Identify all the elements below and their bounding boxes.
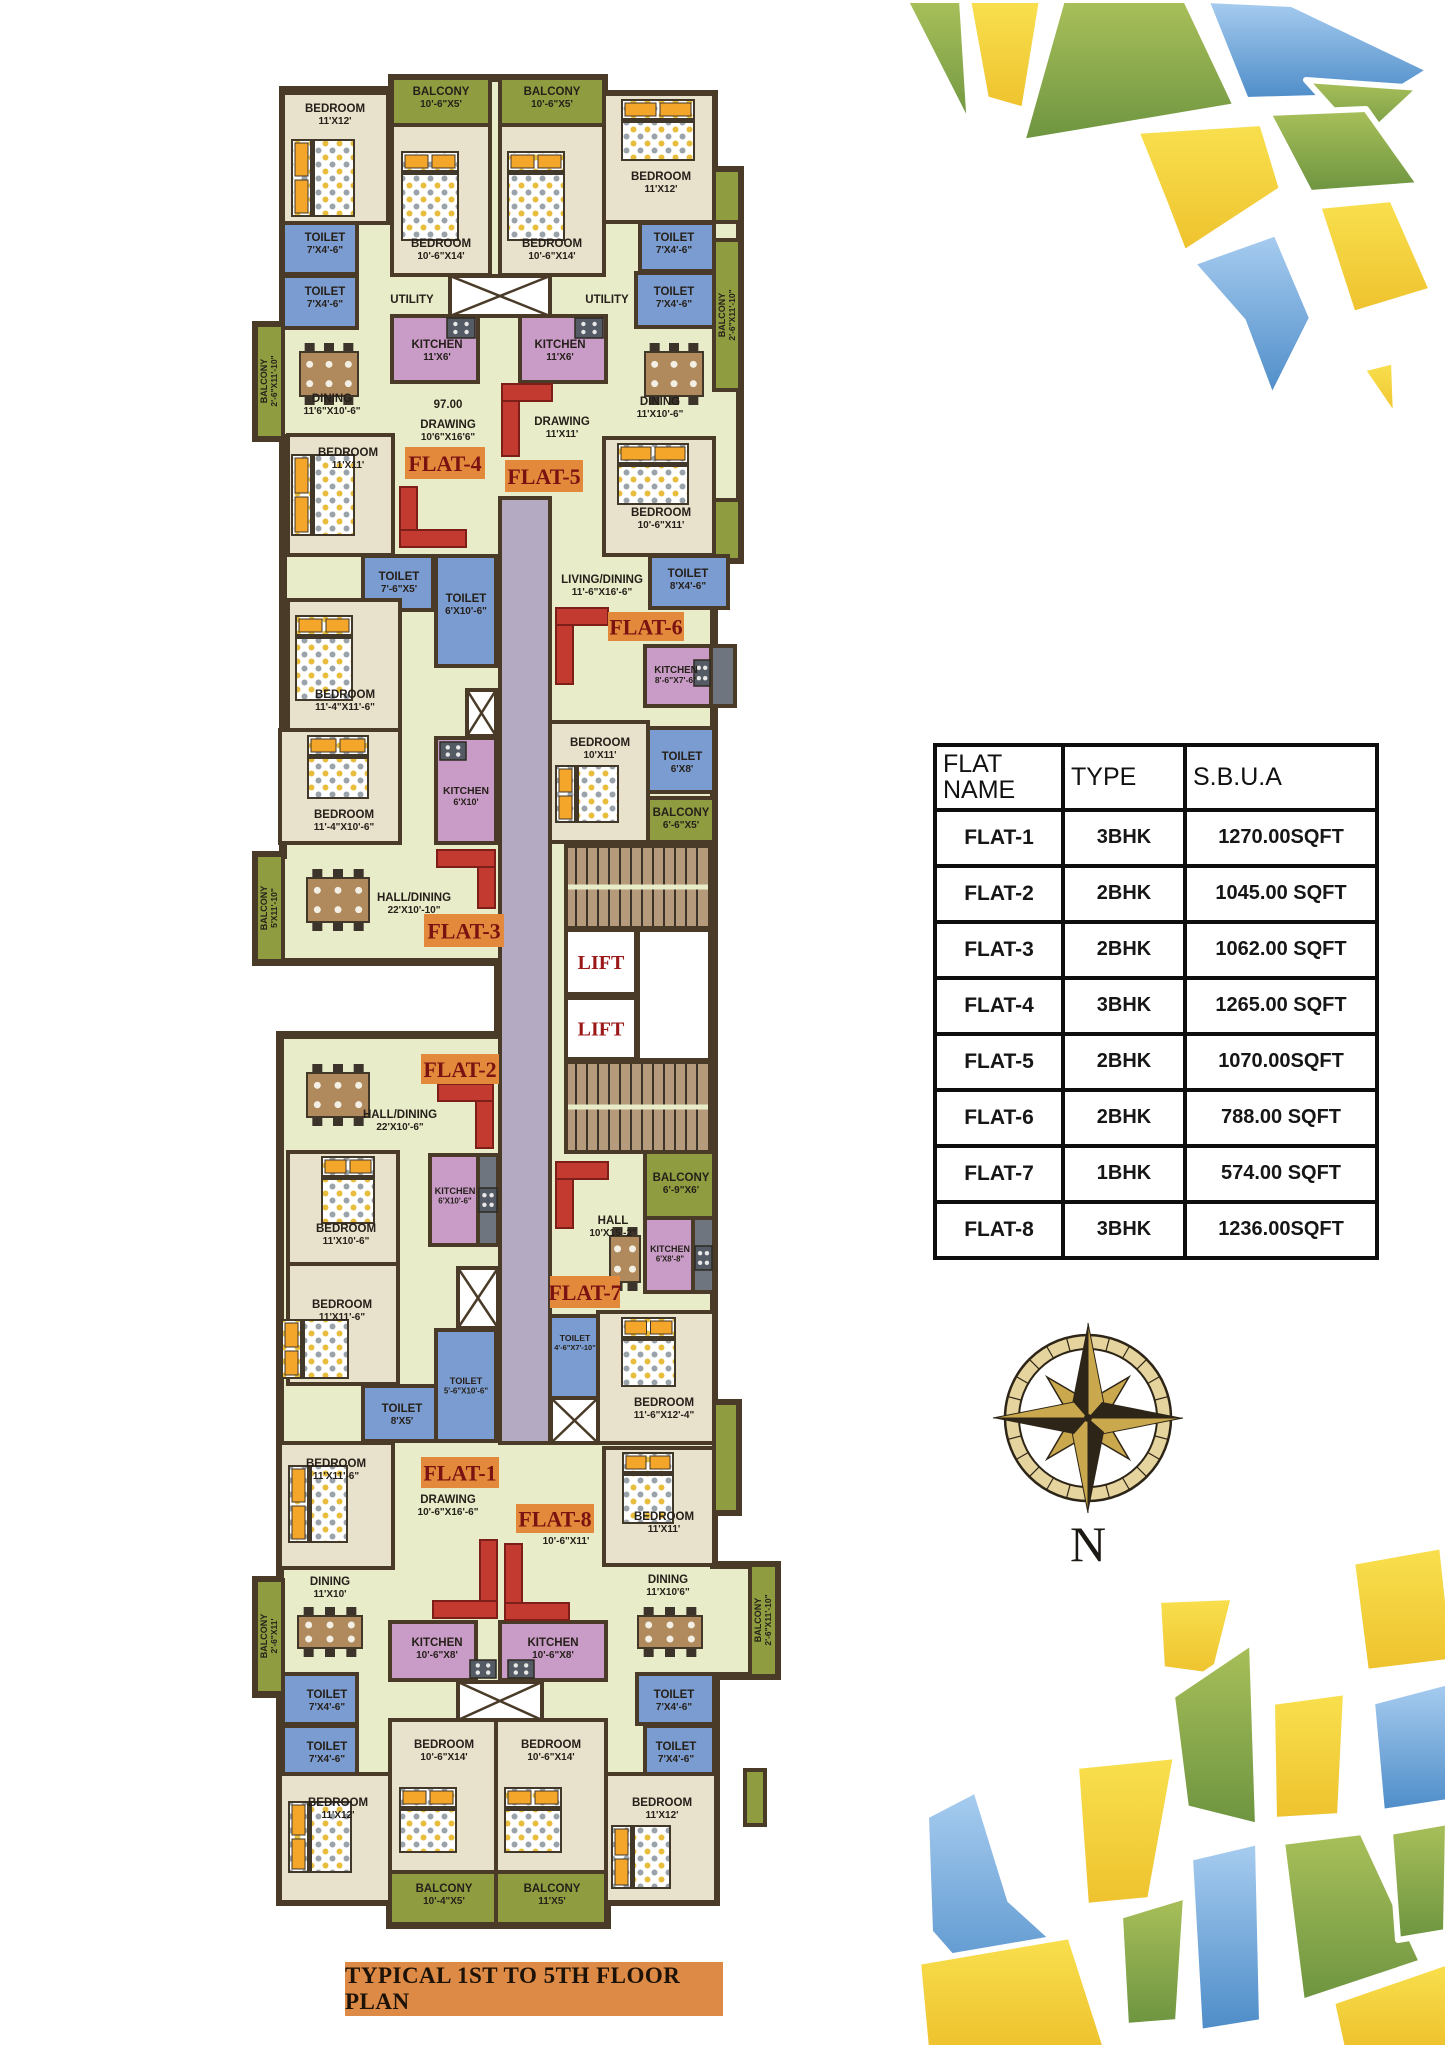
svg-text:BEDROOM: BEDROOM <box>570 737 630 749</box>
cell-type: 2BHK <box>1063 922 1185 978</box>
svg-text:BEDROOM: BEDROOM <box>632 1797 692 1809</box>
stove <box>479 1188 497 1212</box>
svg-text:10'-6"X16'-6": 10'-6"X16'-6" <box>418 1507 479 1518</box>
cell-name: FLAT-8 <box>935 1202 1063 1258</box>
table-header-type: TYPE <box>1063 745 1185 810</box>
svg-text:TOILET: TOILET <box>450 1376 483 1386</box>
svg-text:11'X11'-6": 11'X11'-6" <box>313 1471 359 1482</box>
svg-text:FLAT-2: FLAT-2 <box>423 1057 496 1082</box>
svg-text:BEDROOM: BEDROOM <box>318 447 378 459</box>
svg-text:2'-6"X11'-10": 2'-6"X11'-10" <box>727 289 737 340</box>
svg-text:BEDROOM: BEDROOM <box>634 1397 694 1409</box>
bed <box>282 1320 348 1378</box>
table-row-flat-7: FLAT-71BHK574.00 SQFT <box>935 1146 1377 1202</box>
svg-text:BALCONY: BALCONY <box>259 359 269 404</box>
svg-text:FLAT-6: FLAT-6 <box>609 615 682 640</box>
svg-text:6'X10': 6'X10' <box>453 797 478 807</box>
svg-text:BALCONY: BALCONY <box>259 886 269 931</box>
room-balcony <box>745 1770 765 1825</box>
stove <box>575 318 603 338</box>
room-toilet-label: TOILET5'-6"X10'-6" <box>444 1376 489 1396</box>
svg-text:TOILET: TOILET <box>305 286 346 298</box>
svg-text:BEDROOM: BEDROOM <box>312 1299 372 1311</box>
svg-text:BEDROOM: BEDROOM <box>522 238 582 250</box>
svg-text:5'X11'-10": 5'X11'-10" <box>269 888 279 928</box>
svg-text:DRAWING: DRAWING <box>534 416 590 428</box>
svg-text:11'X12': 11'X12' <box>644 184 677 195</box>
table-row-flat-2: FLAT-22BHK1045.00 SQFT <box>935 866 1377 922</box>
cell-type: 3BHK <box>1063 978 1185 1034</box>
svg-text:KITCHEN: KITCHEN <box>435 1186 476 1196</box>
room-utility-label: UTILITY <box>390 294 434 306</box>
svg-text:BALCONY: BALCONY <box>653 1172 710 1184</box>
flat-label-flat-7: FLAT-7 <box>548 1276 621 1308</box>
svg-text:KITCHEN: KITCHEN <box>411 1637 462 1649</box>
svg-text:5'-6"X10'-6": 5'-6"X10'-6" <box>444 1387 489 1396</box>
svg-text:8'X4'-6": 8'X4'-6" <box>670 581 706 592</box>
bed <box>618 444 688 504</box>
svg-text:7'X4'-6": 7'X4'-6" <box>309 1754 345 1765</box>
svg-text:FLAT-3: FLAT-3 <box>427 919 500 944</box>
svg-text:7'X4'-6": 7'X4'-6" <box>658 1754 694 1765</box>
svg-text:DINING: DINING <box>648 1574 688 1586</box>
room-lift <box>638 930 710 1060</box>
bed <box>402 152 458 240</box>
svg-text:11'-4"X10'-6": 11'-4"X10'-6" <box>314 822 375 833</box>
flat-label-flat-6: FLAT-6 <box>608 612 684 641</box>
cell-area: 574.00 SQFT <box>1185 1146 1377 1202</box>
svg-text:11'X12': 11'X12' <box>318 116 351 127</box>
svg-text:22'X10'-6": 22'X10'-6" <box>376 1122 424 1133</box>
svg-text:TOILET: TOILET <box>307 1689 348 1701</box>
svg-text:BALCONY: BALCONY <box>524 86 581 98</box>
room-gray <box>711 646 735 706</box>
svg-text:10'-6"X5': 10'-6"X5' <box>531 99 573 110</box>
svg-text:TOILET: TOILET <box>560 1333 591 1343</box>
svg-text:TOILET: TOILET <box>668 568 709 580</box>
svg-text:4'-6"X7'-10": 4'-6"X7'-10" <box>554 1343 596 1352</box>
mosaic-decoration-top-right <box>905 0 1432 419</box>
svg-text:8'X5': 8'X5' <box>391 1416 414 1427</box>
mosaic-decoration-bottom-right <box>918 1546 1448 2048</box>
svg-text:6'X10'-6": 6'X10'-6" <box>438 1197 472 1206</box>
room-balcony-label: BALCONY2'-6"X11'-10" <box>259 355 279 406</box>
svg-text:10'-6"X14': 10'-6"X14' <box>417 251 464 262</box>
svg-text:10'-4"X5': 10'-4"X5' <box>423 1896 465 1907</box>
bed <box>556 766 618 822</box>
cell-area: 1045.00 SQFT <box>1185 866 1377 922</box>
cell-name: FLAT-2 <box>935 866 1063 922</box>
svg-text:TOILET: TOILET <box>662 751 703 763</box>
svg-text:HALL: HALL <box>598 1215 629 1227</box>
table-row-flat-3: FLAT-32BHK1062.00 SQFT <box>935 922 1377 978</box>
svg-text:BALCONY: BALCONY <box>259 1614 269 1659</box>
svg-text:FLAT-1: FLAT-1 <box>423 1461 496 1486</box>
room-toilet <box>550 1316 598 1398</box>
cell-name: FLAT-6 <box>935 1090 1063 1146</box>
svg-text:UTILITY: UTILITY <box>390 294 434 306</box>
room-stairs <box>566 1062 710 1152</box>
svg-text:DINING: DINING <box>312 393 352 405</box>
svg-text:TOILET: TOILET <box>379 571 420 583</box>
svg-text:11'X5': 11'X5' <box>538 1896 566 1907</box>
svg-text:2'-6"X11'-10": 2'-6"X11'-10" <box>763 1594 773 1645</box>
table-row-flat-6: FLAT-62BHK788.00 SQFT <box>935 1090 1377 1146</box>
svg-text:6'X8'-8": 6'X8'-8" <box>656 1254 685 1263</box>
svg-text:KITCHEN: KITCHEN <box>443 786 489 797</box>
svg-text:6'-9"X6': 6'-9"X6' <box>663 1185 699 1196</box>
svg-text:10'X11': 10'X11' <box>583 750 616 761</box>
svg-text:BEDROOM: BEDROOM <box>306 1458 366 1470</box>
svg-text:10'-6"X8': 10'-6"X8' <box>532 1650 574 1661</box>
compass-rose: N <box>993 1323 1183 1572</box>
room-utility-label: UTILITY <box>585 294 629 306</box>
table-header-s-b-u-a: S.B.U.A <box>1185 745 1377 810</box>
table-row-flat-1: FLAT-13BHK1270.00SQFT <box>935 810 1377 866</box>
bed <box>308 736 368 798</box>
flat-label-flat-8: FLAT-8 <box>516 1504 594 1533</box>
room-shaft <box>467 690 496 736</box>
svg-text:10'-6"X11': 10'-6"X11' <box>638 520 685 531</box>
svg-text:10'-6"X14': 10'-6"X14' <box>528 251 575 262</box>
svg-text:DRAWING: DRAWING <box>420 1494 476 1506</box>
svg-text:BALCONY: BALCONY <box>416 1883 473 1895</box>
stove <box>508 1660 534 1678</box>
svg-text:DINING: DINING <box>310 1576 350 1588</box>
dining-table <box>307 869 369 931</box>
room-kitchen-label: KITCHEN6'X10'-6" <box>435 1186 476 1206</box>
room-toilet-label: TOILET4'-6"X7'-10" <box>554 1333 596 1352</box>
svg-text:DRAWING: DRAWING <box>420 419 476 431</box>
room-balcony <box>714 170 740 222</box>
cell-type: 2BHK <box>1063 866 1185 922</box>
table-row-flat-8: FLAT-83BHK1236.00SQFT <box>935 1202 1377 1258</box>
stove <box>440 742 466 760</box>
room-shaft <box>551 1398 598 1443</box>
svg-text:LIFT: LIFT <box>578 952 625 974</box>
svg-text:7'X4'-6": 7'X4'-6" <box>656 245 692 256</box>
cell-area: 788.00 SQFT <box>1185 1090 1377 1146</box>
room-balcony <box>714 500 740 560</box>
svg-text:6'-6"X5': 6'-6"X5' <box>663 820 699 831</box>
room-97-00-label: 97.00 <box>434 399 463 411</box>
room-balcony-label: BALCONY2'-6"X11'-10" <box>753 1594 773 1645</box>
svg-text:11'X11': 11'X11' <box>648 1524 681 1535</box>
cell-area: 1270.00SQFT <box>1185 810 1377 866</box>
svg-text:11'X12': 11'X12' <box>645 1810 678 1821</box>
svg-text:TOILET: TOILET <box>446 593 487 605</box>
bed <box>508 152 564 240</box>
stove <box>470 1660 496 1678</box>
svg-text:BEDROOM: BEDROOM <box>634 1511 694 1523</box>
svg-text:LIVING/DINING: LIVING/DINING <box>561 574 643 586</box>
svg-text:11'X11'-6": 11'X11'-6" <box>319 1312 365 1323</box>
cell-type: 1BHK <box>1063 1146 1185 1202</box>
svg-text:BEDROOM: BEDROOM <box>411 238 471 250</box>
svg-text:TOILET: TOILET <box>654 1689 695 1701</box>
svg-text:FLAT-8: FLAT-8 <box>518 1507 591 1532</box>
svg-text:11'X6': 11'X6' <box>423 352 451 363</box>
svg-text:11'X10': 11'X10' <box>313 1589 346 1600</box>
room-stairs <box>566 846 710 928</box>
bed <box>296 616 352 700</box>
svg-text:BALCONY: BALCONY <box>413 86 470 98</box>
svg-text:7'X4'-6": 7'X4'-6" <box>656 299 692 310</box>
svg-text:10'-6"X5': 10'-6"X5' <box>420 99 462 110</box>
svg-text:7'X4'-6": 7'X4'-6" <box>309 1702 345 1713</box>
svg-text:HALL/DINING: HALL/DINING <box>363 1109 437 1121</box>
svg-text:11'X11': 11'X11' <box>332 460 365 471</box>
svg-text:2'-6"X11': 2'-6"X11' <box>269 1618 279 1653</box>
flat-area-table: FLAT NAMETYPES.B.U.A FLAT-13BHK1270.00SQ… <box>933 743 1379 1260</box>
svg-text:TOILET: TOILET <box>307 1741 348 1753</box>
svg-text:11'X11': 11'X11' <box>546 429 579 440</box>
cell-name: FLAT-5 <box>935 1034 1063 1090</box>
plan-title: TYPICAL 1ST TO 5TH FLOOR PLAN <box>345 1962 723 2016</box>
svg-text:TOILET: TOILET <box>305 232 346 244</box>
stove <box>447 318 475 338</box>
svg-text:FLAT-5: FLAT-5 <box>507 464 580 489</box>
svg-text:11'X12': 11'X12' <box>321 1810 354 1821</box>
svg-text:KITCHEN: KITCHEN <box>411 339 462 351</box>
svg-text:FLAT-7: FLAT-7 <box>548 1280 621 1305</box>
flat-label-flat-1: FLAT-1 <box>421 1457 499 1488</box>
table-row-flat-4: FLAT-43BHK1265.00 SQFT <box>935 978 1377 1034</box>
svg-text:7'X4'-6": 7'X4'-6" <box>307 299 343 310</box>
svg-text:KITCHEN: KITCHEN <box>527 1637 578 1649</box>
svg-text:BEDROOM: BEDROOM <box>305 103 365 115</box>
cell-area: 1265.00 SQFT <box>1185 978 1377 1034</box>
room-lift: LIFT <box>566 998 636 1059</box>
room-balcony-label: BALCONY2'-6"X11' <box>259 1614 279 1659</box>
cell-type: 3BHK <box>1063 1202 1185 1258</box>
svg-text:BEDROOM: BEDROOM <box>316 1223 376 1235</box>
cell-area: 1070.00SQFT <box>1185 1034 1377 1090</box>
bed <box>322 1157 374 1223</box>
table-header-flat-name: FLAT NAME <box>935 745 1063 810</box>
svg-text:TOILET: TOILET <box>654 232 695 244</box>
svg-text:BEDROOM: BEDROOM <box>631 507 691 519</box>
svg-text:10'X15'-2": 10'X15'-2" <box>589 1228 637 1239</box>
cell-area: 1062.00 SQFT <box>1185 922 1377 978</box>
bed <box>292 140 354 216</box>
svg-text:UTILITY: UTILITY <box>585 294 629 306</box>
cell-name: FLAT-3 <box>935 922 1063 978</box>
svg-text:7'-6"X5': 7'-6"X5' <box>381 584 417 595</box>
room-kitchen-label: KITCHEN8'-6"X7'-6" <box>654 665 697 685</box>
bed <box>622 100 694 160</box>
svg-text:KITCHEN: KITCHEN <box>650 1244 690 1254</box>
room-balcony-label: BALCONY5'X11'-10" <box>259 886 279 931</box>
svg-text:10'6"X16'6": 10'6"X16'6" <box>421 432 476 443</box>
svg-text:7'X4'-6": 7'X4'-6" <box>307 245 343 256</box>
dining-table <box>638 1607 702 1657</box>
svg-text:BALCONY: BALCONY <box>753 1598 763 1643</box>
svg-text:11'-6"X12'-4": 11'-6"X12'-4" <box>634 1410 695 1421</box>
svg-text:TOILET: TOILET <box>656 1741 697 1753</box>
room-corridor <box>500 498 550 1443</box>
svg-text:BEDROOM: BEDROOM <box>414 1739 474 1751</box>
svg-text:11'X6': 11'X6' <box>546 352 574 363</box>
dining-table <box>298 1607 362 1657</box>
room-lift: LIFT <box>566 930 636 994</box>
cell-name: FLAT-1 <box>935 810 1063 866</box>
flat-label-flat-2: FLAT-2 <box>421 1054 499 1084</box>
compass-north-label: N <box>1070 1516 1106 1572</box>
svg-text:11'6"X10'-6": 11'6"X10'-6" <box>303 406 360 417</box>
room-balcony <box>714 1403 738 1512</box>
svg-text:KITCHEN: KITCHEN <box>534 339 585 351</box>
cell-type: 2BHK <box>1063 1034 1185 1090</box>
svg-text:10'-6"X8': 10'-6"X8' <box>416 1650 458 1661</box>
svg-text:10'-6"X11': 10'-6"X11' <box>543 1536 590 1547</box>
svg-text:BEDROOM: BEDROOM <box>521 1739 581 1751</box>
svg-text:FLAT-4: FLAT-4 <box>408 451 481 476</box>
svg-text:11'X10'-6": 11'X10'-6" <box>323 1236 370 1247</box>
room-shaft <box>458 1682 542 1720</box>
cell-type: 3BHK <box>1063 810 1185 866</box>
svg-text:TOILET: TOILET <box>382 1403 423 1415</box>
flat-label-flat-4: FLAT-4 <box>405 447 485 479</box>
cell-area: 1236.00SQFT <box>1185 1202 1377 1258</box>
cell-name: FLAT-7 <box>935 1146 1063 1202</box>
svg-text:2'-6"X11'-10": 2'-6"X11'-10" <box>269 355 279 406</box>
svg-text:BALCONY: BALCONY <box>524 1883 581 1895</box>
svg-text:10'-6"X14': 10'-6"X14' <box>527 1752 574 1763</box>
cell-type: 2BHK <box>1063 1090 1185 1146</box>
svg-text:97.00: 97.00 <box>434 399 463 411</box>
svg-text:6'X8': 6'X8' <box>671 764 694 775</box>
svg-text:11'X10'-6": 11'X10'-6" <box>637 409 684 420</box>
bed <box>622 1318 675 1386</box>
floor-plan-page: LIFTLIFT BEDROOM11'X12'BALCONY10'-6"X5'B… <box>0 0 1448 2048</box>
svg-text:11'-4"X11'-6": 11'-4"X11'-6" <box>315 702 375 713</box>
svg-text:LIFT: LIFT <box>578 1019 625 1041</box>
bed <box>400 1788 456 1852</box>
svg-text:BEDROOM: BEDROOM <box>315 689 375 701</box>
dining-table <box>307 1064 369 1126</box>
svg-text:BEDROOM: BEDROOM <box>308 1797 368 1809</box>
room-kitchen-label: KITCHEN6'X8'-8" <box>650 1244 690 1263</box>
bed <box>505 1788 561 1852</box>
stove <box>695 1246 712 1270</box>
svg-text:BEDROOM: BEDROOM <box>314 809 374 821</box>
flat-label-flat-5: FLAT-5 <box>505 460 583 492</box>
svg-text:HALL/DINING: HALL/DINING <box>377 892 451 904</box>
svg-text:DINING: DINING <box>640 396 680 408</box>
svg-text:TOILET: TOILET <box>654 286 695 298</box>
bed <box>612 1826 670 1888</box>
room-shaft <box>458 1268 498 1328</box>
svg-text:11'-6"X16'-6": 11'-6"X16'-6" <box>572 587 633 598</box>
cell-name: FLAT-4 <box>935 978 1063 1034</box>
svg-text:10'-6"X14': 10'-6"X14' <box>420 1752 467 1763</box>
svg-text:11'X10'6": 11'X10'6" <box>646 1587 690 1598</box>
table-row-flat-5: FLAT-52BHK1070.00SQFT <box>935 1034 1377 1090</box>
svg-text:BALCONY: BALCONY <box>653 807 710 819</box>
room-shaft <box>450 276 550 316</box>
flat-label-flat-3: FLAT-3 <box>424 914 504 947</box>
svg-text:6'X10'-6": 6'X10'-6" <box>445 606 487 617</box>
svg-text:8'-6"X7'-6": 8'-6"X7'-6" <box>655 675 697 685</box>
svg-text:BEDROOM: BEDROOM <box>631 171 691 183</box>
room-balcony-label: BALCONY2'-6"X11'-10" <box>717 289 737 340</box>
svg-text:7'X4'-6": 7'X4'-6" <box>656 1702 692 1713</box>
svg-text:BALCONY: BALCONY <box>717 293 727 338</box>
